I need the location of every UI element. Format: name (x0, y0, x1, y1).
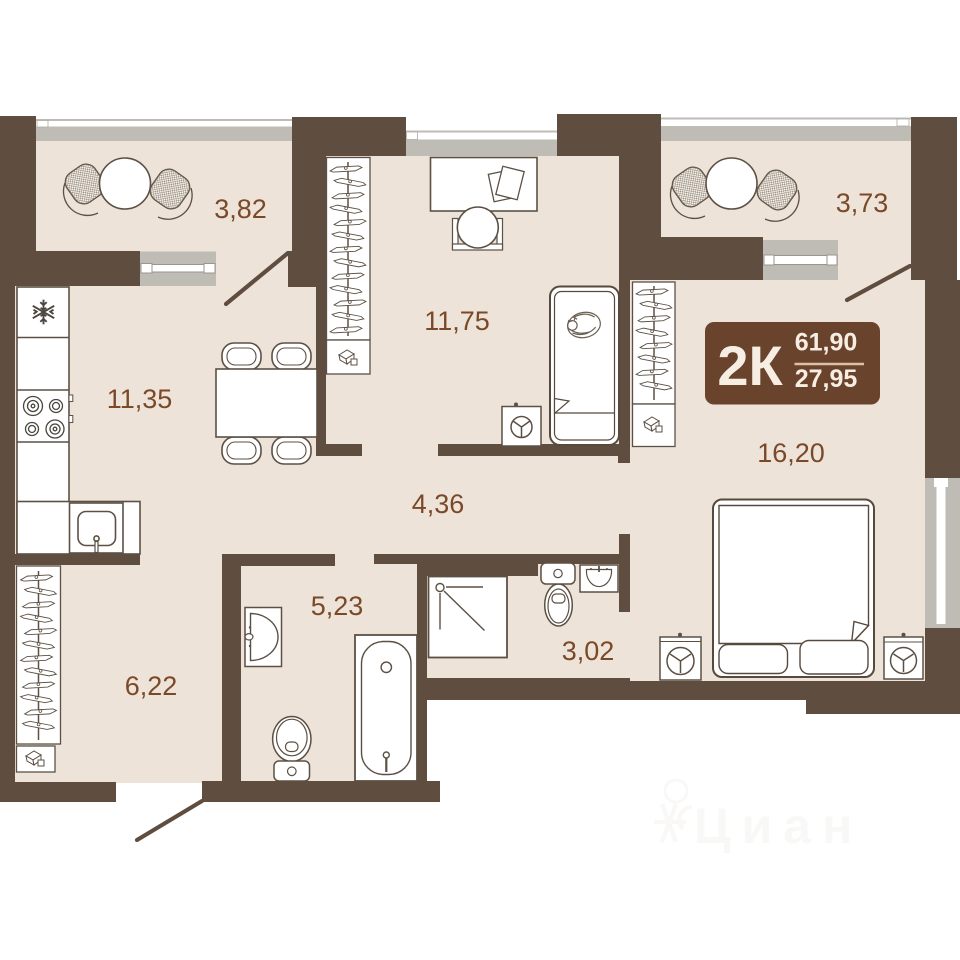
svg-text:27,95: 27,95 (795, 365, 858, 393)
svg-text:2К: 2К (717, 334, 783, 397)
svg-text:3,82: 3,82 (214, 194, 267, 224)
svg-text:61,90: 61,90 (795, 329, 858, 357)
svg-text:16,20: 16,20 (757, 438, 825, 468)
svg-text:5,23: 5,23 (311, 591, 364, 621)
svg-text:11,75: 11,75 (424, 306, 490, 336)
svg-text:6,22: 6,22 (125, 671, 178, 701)
svg-text:11,35: 11,35 (107, 384, 173, 414)
svg-text:4,36: 4,36 (412, 489, 465, 519)
svg-text:3,02: 3,02 (562, 636, 615, 666)
svg-text:Циан: Циан (694, 798, 863, 854)
svg-text:3,73: 3,73 (836, 188, 889, 218)
